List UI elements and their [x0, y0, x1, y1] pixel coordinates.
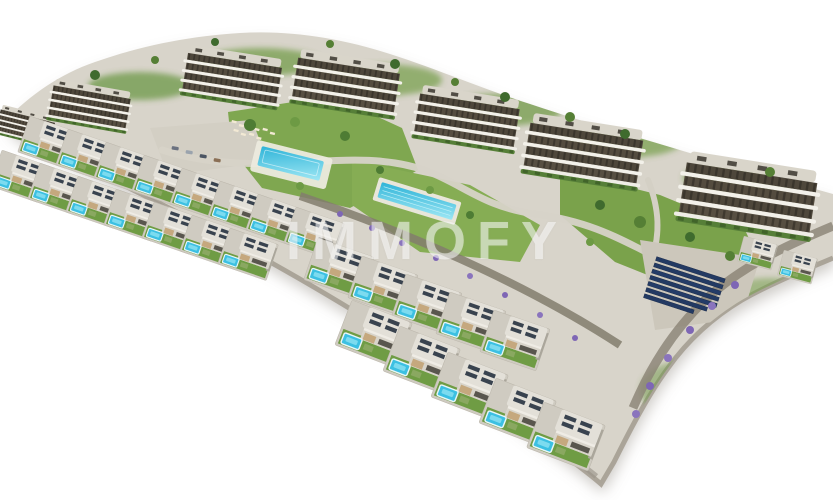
- purple-shrub: [467, 273, 473, 279]
- tree: [90, 70, 100, 80]
- purple-shrub: [337, 211, 343, 217]
- tree: [296, 182, 304, 190]
- tree: [765, 167, 775, 177]
- purple-shrub: [572, 335, 578, 341]
- purple-shrub: [708, 302, 716, 310]
- palm-tree: [244, 119, 256, 131]
- tree: [565, 112, 575, 122]
- palm-tree: [340, 131, 350, 141]
- palm-tree: [426, 186, 434, 194]
- tree: [326, 40, 334, 48]
- purple-shrub: [502, 292, 508, 298]
- tree: [620, 129, 630, 139]
- purple-shrub: [433, 255, 439, 261]
- tree: [725, 251, 735, 261]
- tree: [466, 211, 474, 219]
- tree: [586, 238, 594, 246]
- tree: [451, 78, 459, 86]
- purple-shrub: [731, 281, 739, 289]
- tree: [595, 200, 605, 210]
- tree: [685, 232, 695, 242]
- tree: [634, 216, 646, 228]
- palm-tree: [290, 117, 300, 127]
- tree: [211, 38, 219, 46]
- purple-shrub: [686, 326, 694, 334]
- tree: [390, 59, 400, 69]
- purple-shrub: [664, 354, 672, 362]
- purple-shrub: [537, 312, 543, 318]
- aerial-render-image: IMMOFY: [0, 0, 833, 500]
- palm-tree: [376, 166, 384, 174]
- render-scene: [0, 0, 833, 500]
- tree: [500, 92, 510, 102]
- purple-shrub: [646, 382, 654, 390]
- purple-shrub: [399, 240, 405, 246]
- purple-shrub: [369, 225, 375, 231]
- purple-shrub: [632, 410, 640, 418]
- tree: [151, 56, 159, 64]
